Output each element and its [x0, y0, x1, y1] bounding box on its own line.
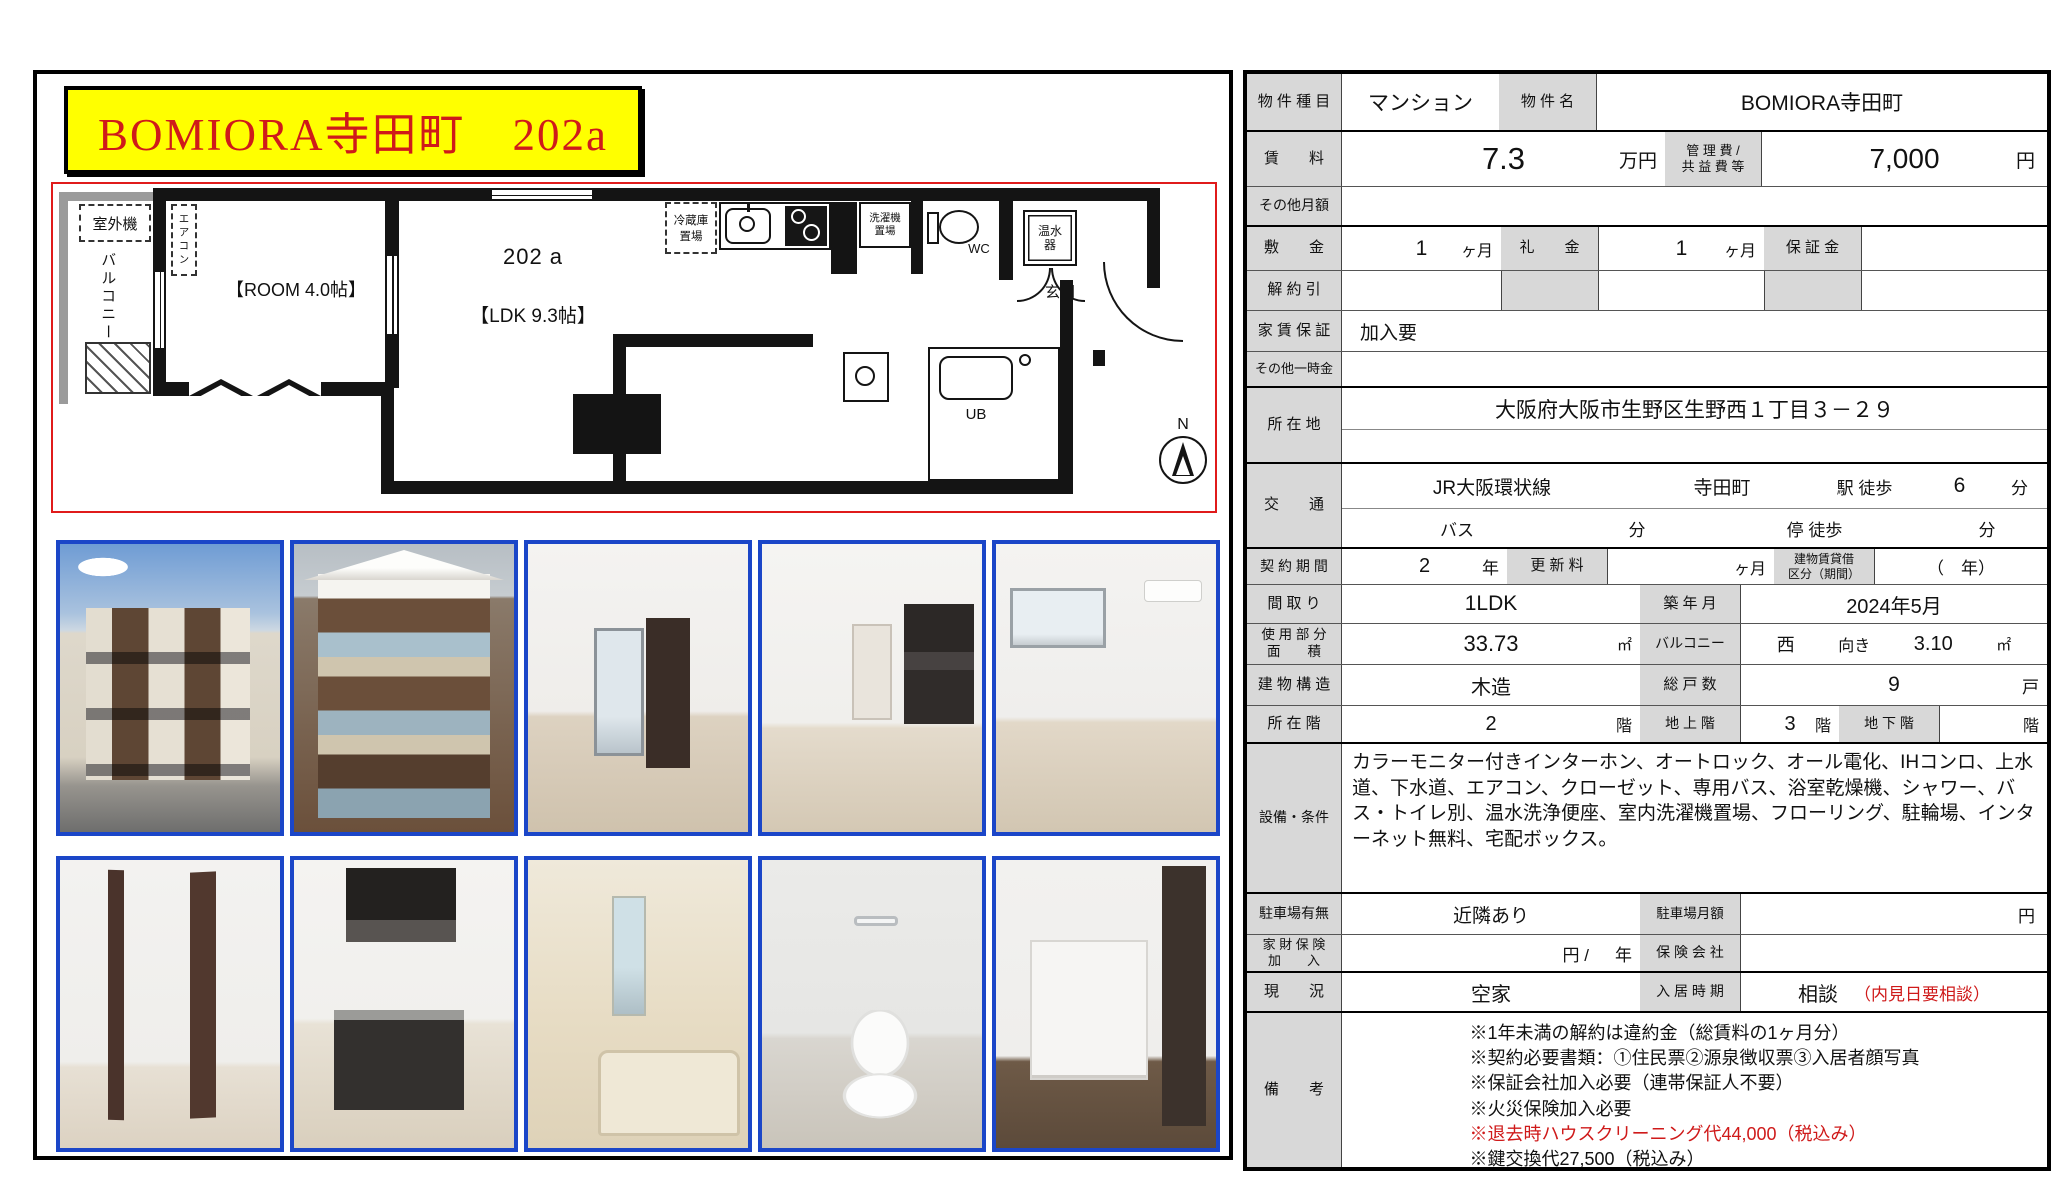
balcony-hatch-symbol	[85, 342, 151, 394]
floor-cell: 2 階	[1342, 706, 1640, 742]
other-monthly-value	[1342, 187, 2047, 225]
deposit-value: 1	[1416, 237, 1428, 261]
balcony-wall-top	[59, 192, 159, 201]
photo-interior-room-window	[992, 540, 1220, 836]
insurance-cell: 円 / 年	[1342, 935, 1640, 971]
photo-entrance-storage	[992, 856, 1220, 1152]
table-row: 備 考 ※1年未満の解約は違約金（総賃料の1ヶ月分） ※契約必要書類：①住民票②…	[1247, 1013, 2047, 1167]
built-date-label: 築 年 月	[1640, 585, 1741, 623]
photo-interior-hallway	[524, 540, 752, 836]
equipment-text: カラーモニター付きインターホン、オートロック、オール電化、IHコンロ、上水道、下…	[1342, 744, 2047, 859]
balcony-direction: 西	[1777, 631, 1795, 657]
window-room-left	[153, 272, 166, 348]
equipment-label: 設備・条件	[1247, 744, 1342, 892]
aircon-box: エアコン	[171, 204, 197, 276]
photo-unit-bath	[524, 856, 752, 1152]
status-label: 現 況	[1247, 973, 1342, 1011]
address-line-2	[1342, 430, 2047, 462]
bus-label: バス	[1342, 516, 1572, 541]
title-banner: BOMIORA寺田町 202a	[64, 86, 642, 174]
floor-plan: 室外機 バルコニー エアコン 【ROOM 4.0帖】 202 a 【LDK 9.…	[51, 182, 1217, 513]
below-ground-cell: 階	[1940, 706, 2047, 742]
closet-pleat-1-inner	[197, 385, 245, 398]
movein-cell: 相談 （内見日要相談）	[1741, 973, 2047, 1011]
remark-line: ※契約必要書類：①住民票②源泉徴収票③入居者顔写真	[1470, 1046, 1920, 1071]
insurer-label: 保 険 会 社	[1640, 935, 1741, 971]
toilet-tank	[927, 212, 939, 244]
lease-type-label: 建物賃貸借 区分（期間）	[1774, 549, 1875, 584]
wall-bottom	[381, 481, 1073, 494]
key-money-label: 礼 金	[1501, 227, 1599, 270]
cancel-deduction-label: 解 約 引	[1247, 271, 1342, 310]
structure-label: 建 物 構 造	[1247, 665, 1342, 705]
cancel-cell-3	[1862, 271, 2047, 310]
photo-exterior-front-view	[290, 540, 518, 836]
wall-right-upper	[1147, 188, 1160, 288]
floor-label: 所 在 階	[1247, 706, 1342, 742]
floor-value: 2	[1485, 713, 1496, 736]
remark-line: ※1年未満の解約は違約金（総賃料の1ヶ月分）	[1470, 1021, 1920, 1046]
balcony-area: 3.10	[1914, 633, 1953, 656]
renewal-fee-unit: ヶ月	[1734, 555, 1766, 579]
parking-fee-unit: 円	[2018, 902, 2035, 927]
remark-line: ※火災保険加入必要	[1470, 1097, 1920, 1122]
page-title: BOMIORA寺田町 202a	[98, 98, 608, 163]
total-units-label: 総 戸 数	[1640, 665, 1741, 705]
transport-bus-row: バス 分 停 徒歩 分	[1342, 509, 2047, 547]
walk-minutes-unit: 分	[1992, 474, 2047, 499]
remarks-text: ※1年未満の解約は違約金（総賃料の1ヶ月分） ※契約必要書類：①住民票②源泉徴収…	[1460, 1013, 1930, 1180]
mgmt-fee-label: 管 理 費 / 共 益 費 等	[1665, 132, 1762, 186]
property-type-value: マンション	[1342, 74, 1499, 130]
stop-suffix: 停 徒歩	[1702, 516, 1927, 541]
station-suffix: 駅 徒歩	[1802, 474, 1927, 499]
window-divider	[385, 256, 399, 334]
table-row: 家 賃 保 証 加入要	[1247, 311, 2047, 352]
photo-exterior-angled-view	[56, 540, 284, 836]
key-money-unit: ヶ月	[1724, 237, 1756, 261]
property-details-table: 物 件 種 目 マンション 物 件 名 BOMIORA寺田町 賃 料 7.3 万…	[1243, 70, 2051, 1171]
bathtub	[939, 356, 1013, 400]
usable-area-cell: 33.73 ㎡	[1342, 624, 1640, 664]
table-row: 物 件 種 目 マンション 物 件 名 BOMIORA寺田町	[1247, 74, 2047, 132]
toilet-bowl-icon	[939, 210, 979, 244]
table-row: 契 約 期 間 2 年 更 新 料 ヶ月 建物賃貸借 区分（期間） （ 年）	[1247, 549, 2047, 585]
built-date-value: 2024年5月	[1741, 585, 2047, 623]
mgmt-fee-cell: 7,000 円	[1762, 132, 2047, 186]
shower-icon	[1019, 354, 1031, 366]
total-units-cell: 9 戸	[1741, 665, 2047, 705]
deposit-unit: ヶ月	[1461, 237, 1493, 261]
closet-pleat-2-inner	[265, 385, 313, 398]
unit-number-label: 202 a	[453, 244, 613, 269]
above-ground-unit: 階	[1815, 712, 1831, 736]
stove-burner-2	[803, 224, 820, 241]
faucet-icon	[747, 202, 750, 212]
wall-washroom-top	[613, 334, 813, 347]
layout-label: 間 取 り	[1247, 585, 1342, 623]
balcony-wall-left	[59, 192, 68, 404]
table-row: 所 在 階 2 階 地 上 階 3 階 地 下 階 階	[1247, 706, 2047, 744]
ldk-label: 【LDK 9.3帖】	[438, 306, 628, 328]
stop-minutes-unit: 分	[1927, 516, 2047, 541]
key-money-cell: 1 ヶ月	[1599, 227, 1764, 270]
photo-closet-open-doors	[56, 856, 284, 1152]
above-ground-value: 3	[1784, 713, 1795, 736]
above-ground-label: 地 上 階	[1640, 706, 1741, 742]
left-panel: BOMIORA寺田町 202a 室外機 バルコニー エアコン 【ROOM 4.0…	[33, 70, 1233, 1160]
wall-entry-left	[999, 188, 1013, 280]
contract-period-label: 契 約 期 間	[1247, 549, 1342, 584]
cancel-cell-2	[1599, 271, 1764, 310]
water-heater-box: 温水 器	[1023, 210, 1077, 266]
deposit-cell: 1 ヶ月	[1342, 227, 1501, 270]
walk-minutes: 6	[1927, 474, 1992, 498]
balcony-col-label: バルコニー	[1640, 624, 1741, 664]
table-row: 設備・条件 カラーモニター付きインターホン、オートロック、オール電化、IHコンロ…	[1247, 744, 2047, 894]
fridge-space-box: 冷蔵庫 置場	[665, 202, 717, 254]
table-row: 解 約 引	[1247, 271, 2047, 311]
table-row: 家 財 保 険 加 入 円 / 年 保 険 会 社	[1247, 935, 2047, 973]
guarantee-label-extension	[1764, 271, 1862, 310]
usable-area-label: 使 用 部 分 面 積	[1247, 624, 1342, 664]
contract-unit: 年	[1482, 554, 1499, 579]
property-name-value: BOMIORA寺田町	[1597, 74, 2047, 130]
front-door-arc	[1103, 262, 1183, 342]
property-name-label: 物 件 名	[1499, 74, 1597, 130]
table-row: 現 況 空家 入 居 時 期 相談 （内見日要相談）	[1247, 973, 2047, 1013]
renewal-fee-cell: ヶ月	[1608, 549, 1774, 584]
wall-right-lower	[1060, 280, 1073, 494]
wall-step-vertical	[381, 382, 394, 494]
cancel-deduction-value	[1342, 271, 1501, 310]
deposit-label: 敷 金	[1247, 227, 1342, 270]
property-type-label: 物 件 種 目	[1247, 74, 1342, 130]
table-row: 所 在 地 大阪府大阪市生野区生野西１丁目３－２９	[1247, 388, 2047, 464]
photo-kitchen-unit	[290, 856, 518, 1152]
washer-space-box: 洗濯機 置場	[859, 202, 911, 248]
remark-line: ※鍵交換代27,500（税込み）	[1470, 1147, 1920, 1172]
stove-burner-1	[791, 209, 806, 224]
below-ground-label: 地 下 階	[1839, 706, 1940, 742]
usable-area-unit: ㎡	[1617, 634, 1632, 655]
rent-value-cell: 7.3 万円	[1342, 132, 1665, 186]
other-monthly-label: その他月額	[1247, 187, 1342, 225]
wall-washroom-left	[613, 334, 626, 494]
bus-minutes-unit: 分	[1572, 516, 1702, 541]
guarantee-value	[1862, 227, 2047, 270]
wall-left-upper	[153, 188, 166, 272]
outdoor-unit-box: 室外機	[79, 204, 151, 242]
address-value: 大阪府大阪市生野区生野西１丁目３－２９	[1342, 388, 2047, 430]
contract-period-cell: 2 年	[1342, 549, 1507, 584]
address-label: 所 在 地	[1247, 388, 1342, 462]
remark-line: ※保証会社加入必要（連帯保証人不要）	[1470, 1071, 1920, 1096]
insurance-label: 家 財 保 険 加 入	[1247, 935, 1342, 971]
wall-kitchen	[831, 202, 857, 274]
parking-value: 近隣あり	[1342, 894, 1640, 934]
key-money-label-extension	[1501, 271, 1599, 310]
wc-label: WC	[959, 242, 999, 257]
movein-label: 入 居 時 期	[1640, 973, 1741, 1011]
below-ground-unit: 階	[2023, 712, 2039, 736]
table-row: 賃 料 7.3 万円 管 理 費 / 共 益 費 等 7,000 円	[1247, 132, 2047, 187]
rent-value: 7.3	[1482, 141, 1525, 177]
usable-area-value: 33.73	[1463, 631, 1518, 657]
lease-type-value: （ 年）	[1875, 549, 2047, 584]
table-row: 間 取 り 1LDK 築 年 月 2024年5月	[1247, 585, 2047, 624]
compass-arrow-notch	[1176, 456, 1190, 475]
table-row: その他一時金	[1247, 352, 2047, 388]
key-symbol	[1093, 350, 1105, 366]
remarks-label: 備 考	[1247, 1013, 1342, 1167]
status-value: 空家	[1342, 973, 1640, 1011]
parking-fee-label: 駐車場月額	[1640, 894, 1741, 934]
table-row: 使 用 部 分 面 積 33.73 ㎡ バルコニー 西 向き 3.10 ㎡	[1247, 624, 2047, 665]
train-line: JR大阪環状線	[1342, 473, 1642, 500]
parking-fee-cell: 円	[1741, 894, 2047, 934]
table-row: 交 通 JR大阪環状線 寺田町 駅 徒歩 6 分 バス 分 停 徒歩 分	[1247, 464, 2047, 549]
station-name: 寺田町	[1642, 473, 1802, 500]
table-row: 建 物 構 造 木造 総 戸 数 9 戸	[1247, 665, 2047, 706]
floor-unit: 階	[1616, 712, 1632, 736]
washbasin-bowl-icon	[855, 366, 875, 386]
structure-value: 木造	[1342, 665, 1640, 705]
insurer-value	[1741, 935, 2047, 971]
window-ldk-top	[492, 188, 592, 201]
mgmt-fee-unit: 円	[2016, 146, 2035, 173]
balcony-area-unit: ㎡	[1996, 634, 2011, 655]
transport-train-row: JR大阪環状線 寺田町 駅 徒歩 6 分	[1342, 464, 2047, 509]
total-units-unit: 戸	[2022, 673, 2039, 698]
property-flyer: BOMIORA寺田町 202a 室外機 バルコニー エアコン 【ROOM 4.0…	[0, 0, 2056, 1183]
photo-toilet	[758, 856, 986, 1152]
room-label: 【ROOM 4.0帖】	[181, 280, 411, 301]
contract-years: 2	[1419, 555, 1430, 578]
insurance-unit: 円 /	[1563, 941, 1589, 966]
rent-label: 賃 料	[1247, 132, 1342, 186]
remarks-cell: ※1年未満の解約は違約金（総賃料の1ヶ月分） ※契約必要書類：①住民票②源泉徴収…	[1342, 1013, 2047, 1167]
sink-drain-icon	[739, 216, 755, 232]
balcony-facing: 向き	[1838, 632, 1870, 656]
wall-bottom-left	[153, 382, 189, 396]
total-units-value: 9	[1888, 673, 1900, 697]
other-onetime-label: その他一時金	[1247, 352, 1342, 386]
unit-bath-label: UB	[939, 406, 1013, 423]
table-row: その他月額	[1247, 187, 2047, 227]
table-row: 駐車場有無 近隣あり 駐車場月額 円	[1247, 894, 2047, 935]
wall-wc-left	[911, 188, 923, 274]
compass-n-label: N	[1159, 416, 1207, 434]
rent-guarantee-label: 家 賃 保 証	[1247, 311, 1342, 351]
mgmt-fee-value: 7,000	[1869, 143, 1939, 175]
table-row: 敷 金 1 ヶ月 礼 金 1 ヶ月 保 証 金	[1247, 227, 2047, 271]
movein-value: 相談	[1798, 978, 1838, 1007]
layout-value: 1LDK	[1342, 585, 1640, 623]
rent-guarantee-value: 加入要	[1342, 311, 2047, 351]
remark-line-highlight: ※退去時ハウスクリーニング代44,000（税込み）	[1470, 1122, 1920, 1147]
movein-note: （内見日要相談）	[1854, 980, 1990, 1005]
photo-interior-ldk	[758, 540, 986, 836]
other-onetime-value	[1342, 352, 2047, 386]
insurance-year-unit: 年	[1615, 941, 1632, 966]
above-ground-cell: 3 階	[1741, 706, 1839, 742]
equipment-cell: カラーモニター付きインターホン、オートロック、オール電化、IHコンロ、上水道、下…	[1342, 744, 2047, 892]
parking-label: 駐車場有無	[1247, 894, 1342, 934]
balcony-label: バルコニー	[99, 252, 116, 342]
rent-unit: 万円	[1619, 146, 1657, 173]
guarantee-label: 保 証 金	[1764, 227, 1862, 270]
key-money-value: 1	[1676, 237, 1688, 261]
balcony-cell: 西 向き 3.10 ㎡	[1741, 624, 2047, 664]
transport-label: 交 通	[1247, 464, 1342, 547]
renewal-fee-label: 更 新 料	[1507, 549, 1608, 584]
